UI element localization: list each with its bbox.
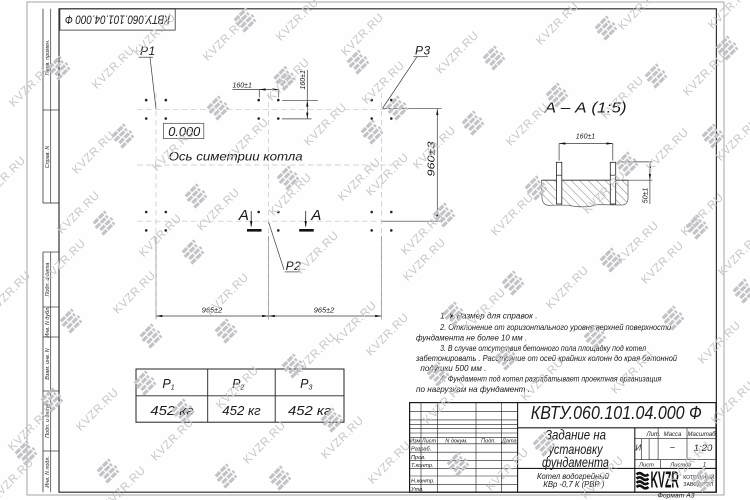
svg-text:160±1: 160±1 xyxy=(576,134,596,141)
svg-text:Р3: Р3 xyxy=(415,44,431,58)
svg-text:160±1: 160±1 xyxy=(233,82,253,89)
svg-text:фундамента не более 10 мм: фундамента не более 10 мм . xyxy=(416,332,527,342)
svg-text:А: А xyxy=(238,207,249,224)
svg-text:Изм: Изм xyxy=(410,438,421,444)
svg-text:Дата: Дата xyxy=(501,438,517,444)
svg-text:50±1: 50±1 xyxy=(643,188,650,204)
svg-text:Инв. N дубл.: Инв. N дубл. xyxy=(45,306,51,337)
svg-text:N докум.: N докум. xyxy=(445,438,468,444)
svg-text:КВТУ.060.101.04.000 Ф: КВТУ.060.101.04.000 Ф xyxy=(65,13,170,25)
svg-text:Утв.: Утв. xyxy=(410,487,424,493)
svg-text:Пров.: Пров. xyxy=(411,455,426,461)
svg-text:Подп.: Подп. xyxy=(481,438,496,444)
svg-text:1: 1 xyxy=(703,462,706,468)
svg-text:Масштаб: Масштаб xyxy=(687,432,716,438)
svg-text:Справ. N: Справ. N xyxy=(45,146,51,169)
svg-text:Задание на: Задание на xyxy=(545,428,606,443)
svg-text:фундамента: фундамента xyxy=(542,455,609,470)
svg-text:965±2: 965±2 xyxy=(314,305,335,314)
svg-text:Взам. инв. N: Взам. инв. N xyxy=(45,348,51,380)
svg-text:А: А xyxy=(310,207,321,224)
svg-text:Н.контр.: Н.контр. xyxy=(411,479,435,485)
svg-text:Инв. N подл.: Инв. N подл. xyxy=(45,456,51,488)
svg-text:Формат А3: Формат А3 xyxy=(658,493,695,500)
svg-text:Т.контр.: Т.контр. xyxy=(411,463,434,469)
svg-text:Лист: Лист xyxy=(421,438,437,444)
svg-text:–: – xyxy=(669,443,675,452)
svg-text:Масса: Масса xyxy=(664,432,682,438)
svg-text:Разраб.: Разраб. xyxy=(411,447,431,453)
svg-text:3. В случае отсутствия бет: 3. В случае отсутствия бетонного пола пл… xyxy=(440,343,646,353)
svg-text:И: И xyxy=(635,443,641,452)
svg-text:КВТУ.060.101.04.000 Ф: КВТУ.060.101.04.000 Ф xyxy=(531,402,702,423)
svg-text:по нагрузкам на фундамент .: по нагрузкам на фундамент . xyxy=(416,384,530,394)
svg-text:Лит.: Лит. xyxy=(646,432,661,438)
